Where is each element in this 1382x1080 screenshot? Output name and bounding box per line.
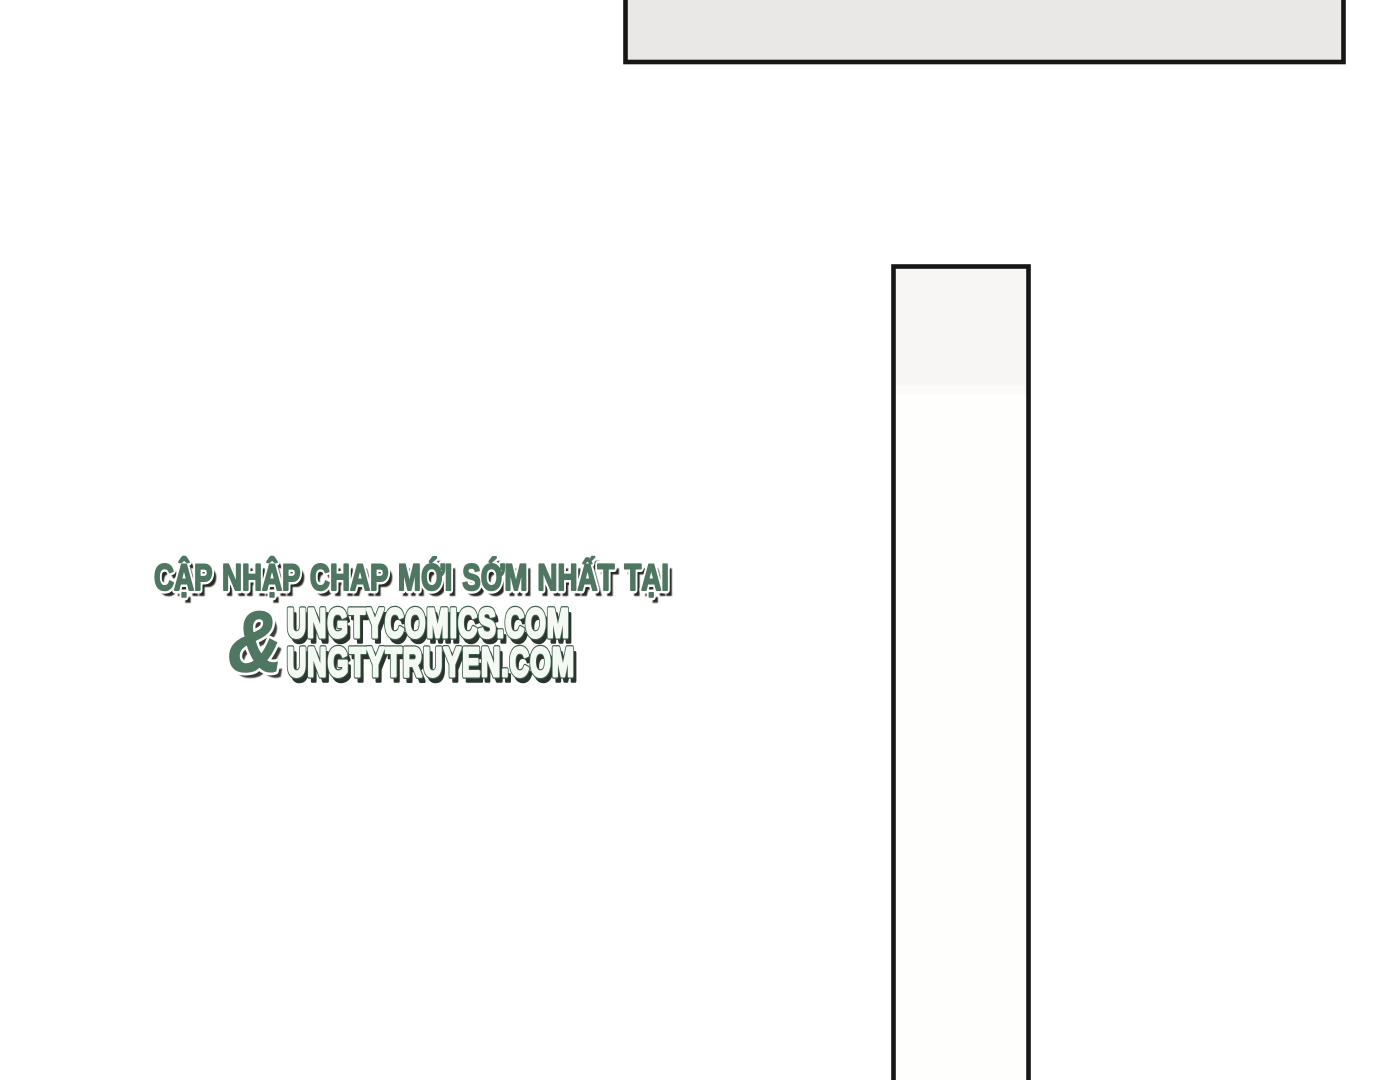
svg-text:CẬP NHẬP CHAP MỚI SỚM NHẤT TẠI: CẬP NHẬP CHAP MỚI SỚM NHẤT TẠI (154, 556, 669, 598)
svg-text:&: & (228, 594, 282, 690)
svg-text:UNGTYTRUYEN.COM: UNGTYTRUYEN.COM (287, 639, 575, 685)
